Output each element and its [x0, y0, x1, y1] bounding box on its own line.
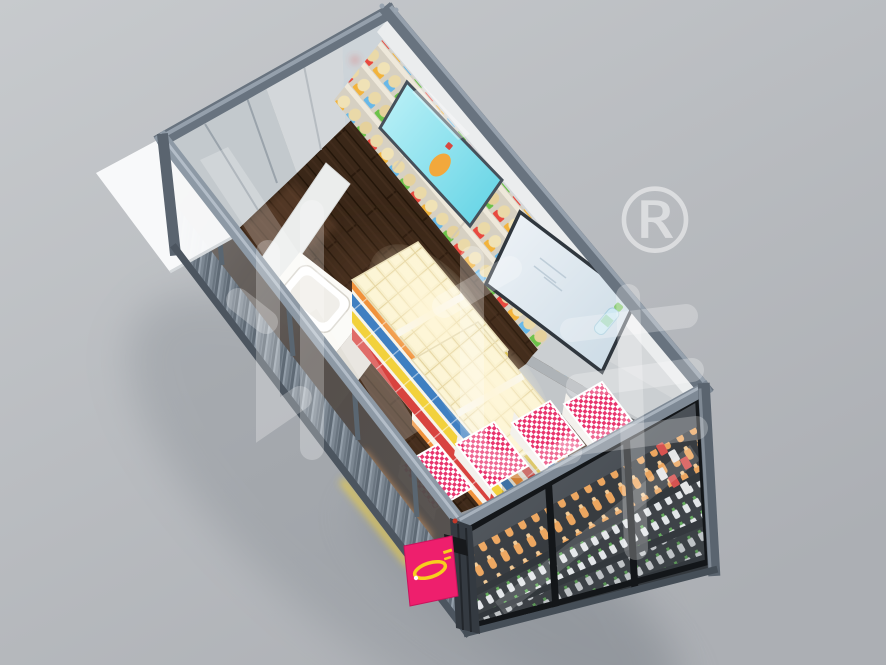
registered-trademark-symbol: ® [609, 168, 701, 275]
watermark-glyph [628, 296, 636, 548]
post-bolt [453, 519, 458, 524]
sign-board [404, 536, 458, 606]
container-store-render: ® [0, 0, 886, 665]
corner-fitting [380, 4, 385, 9]
sign-dot [414, 576, 418, 580]
render-canvas: ® [0, 0, 886, 665]
corner-fitting [394, 8, 399, 13]
